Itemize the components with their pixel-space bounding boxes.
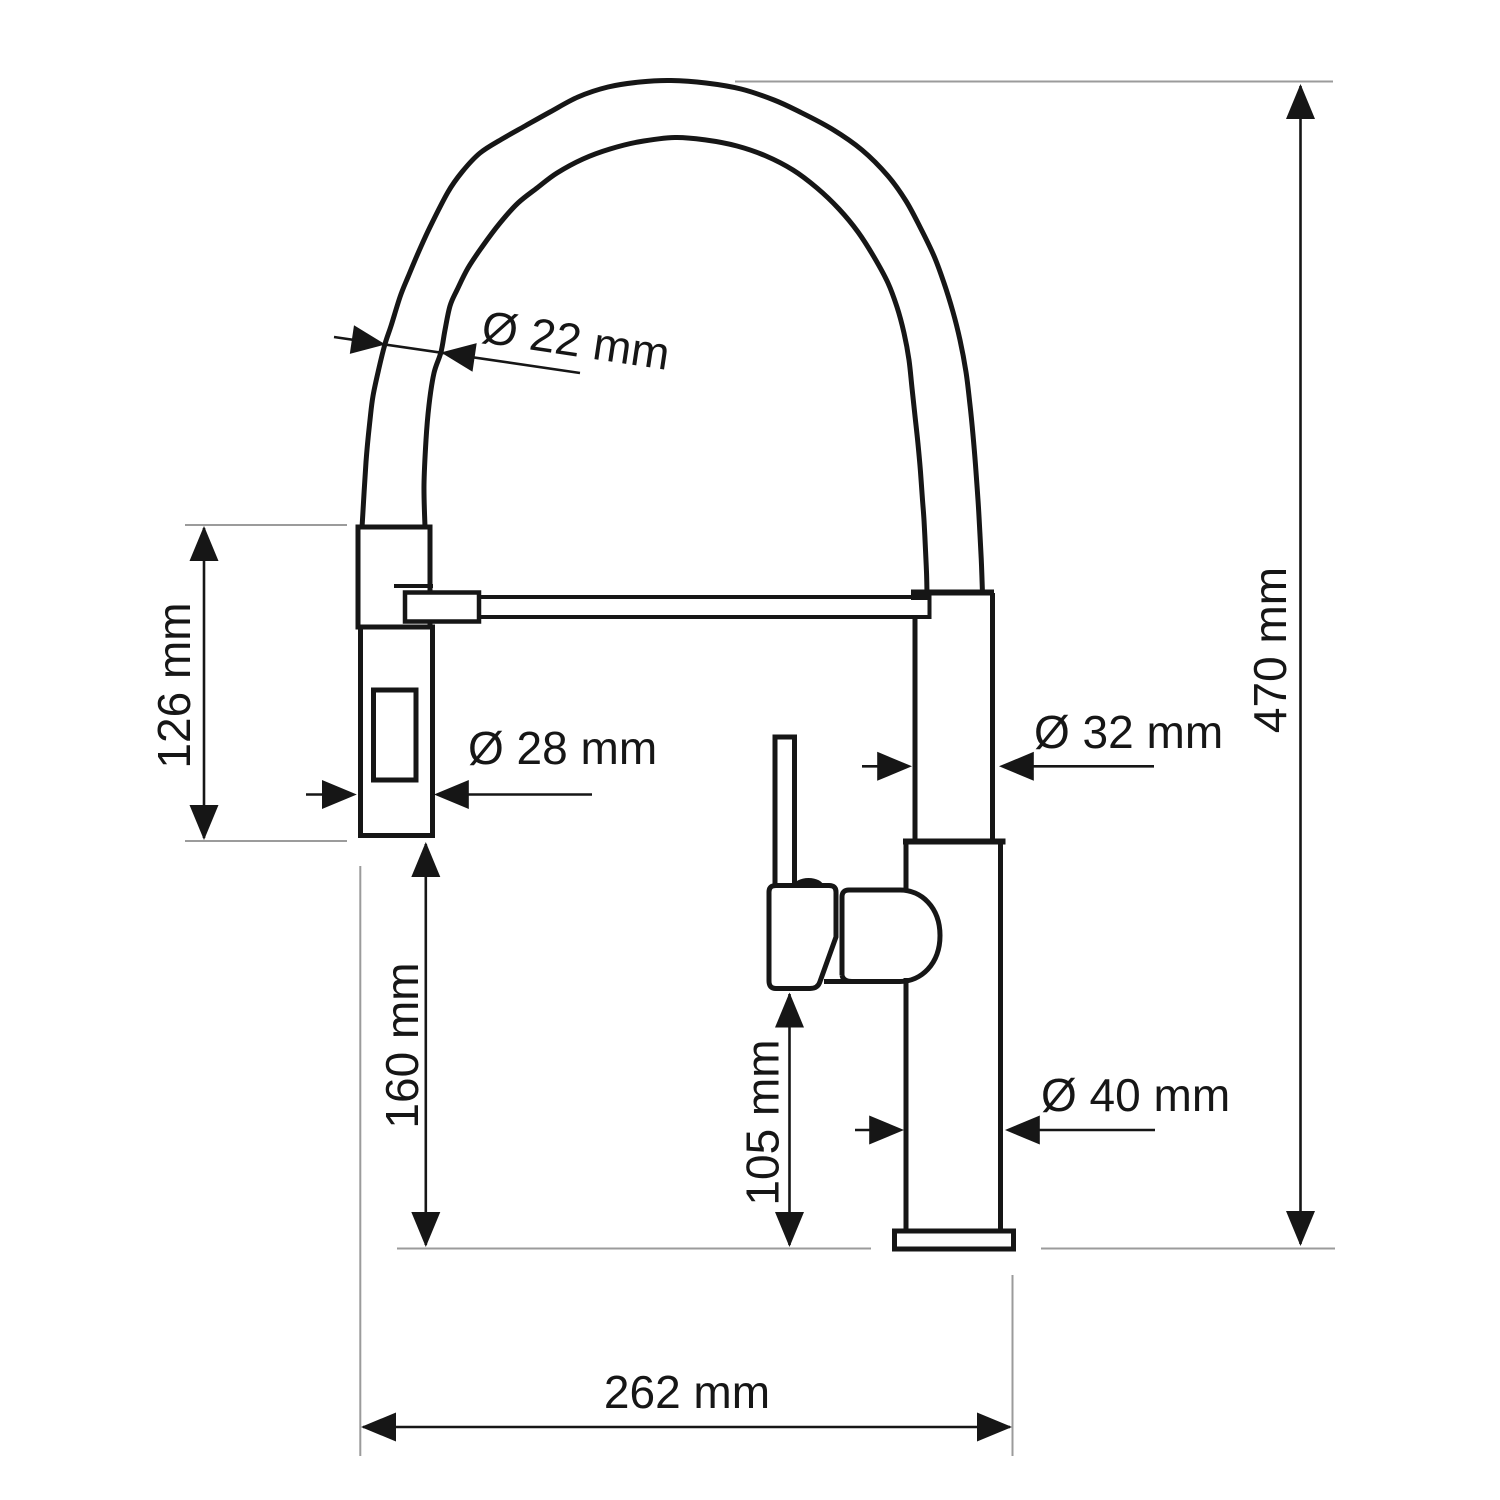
svg-text:Ø 28 mm: Ø 28 mm xyxy=(468,722,657,774)
svg-text:Ø 32 mm: Ø 32 mm xyxy=(1034,706,1223,758)
svg-text:105 mm: 105 mm xyxy=(737,1039,789,1205)
svg-text:160 mm: 160 mm xyxy=(376,962,428,1128)
svg-text:Ø 40 mm: Ø 40 mm xyxy=(1041,1069,1230,1121)
svg-text:126 mm: 126 mm xyxy=(148,602,200,768)
svg-text:262 mm: 262 mm xyxy=(604,1366,770,1418)
svg-text:470 mm: 470 mm xyxy=(1244,567,1296,733)
